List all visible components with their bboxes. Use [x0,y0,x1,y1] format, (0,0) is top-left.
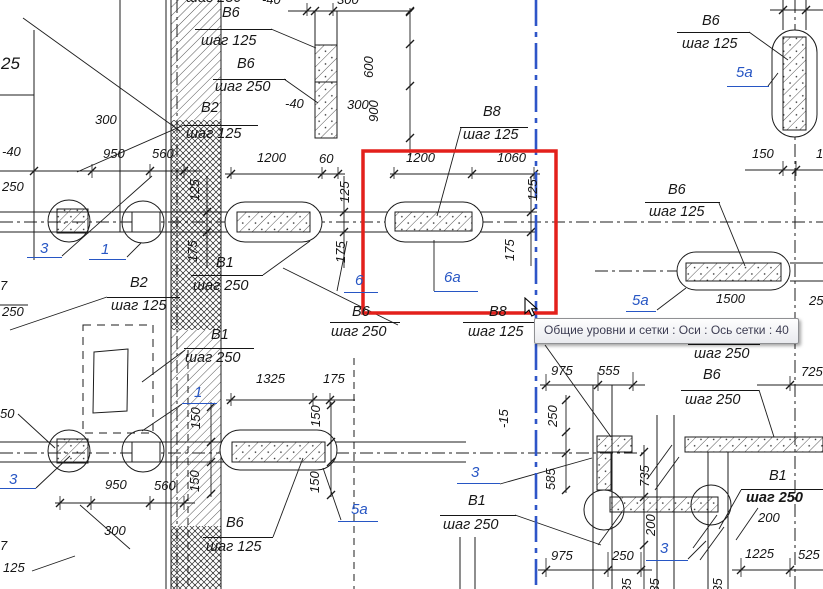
dimension-label: 7 [0,539,7,552]
grid-ref-underline [646,560,688,561]
cursor-arrow [524,297,540,319]
dimension-label: 560 [154,479,176,492]
label-underline [681,390,759,391]
dimension-label: 200 [758,511,780,524]
dimension-label: 1060 [497,151,526,164]
rebar-spacing-label: В6 [668,183,686,198]
rebar-zones [48,30,823,530]
rebar-spacing-label: шаг 250 [185,351,240,366]
grid-ref-label: 3 [40,241,48,256]
rebar-spacing-label: шаг 250 [193,279,248,294]
dimension-label: 150 [752,147,774,160]
dimension-label: 1225 [745,547,774,560]
dimension-label: 735 [638,465,651,487]
dimension-label: 300 [337,0,359,6]
dimension-label: 900 [367,100,380,122]
rebar-spacing-label: шаг 125 [649,205,704,220]
label-underline [741,489,823,490]
grid-ref-label: 1 [101,242,109,257]
cad-viewport[interactable]: шаг 250В6шаг 125В6шаг 250В2шаг 125-40300… [0,0,823,589]
rebar-spacing-label: В6 [702,14,720,29]
dimension-label: 200 [644,514,657,536]
grid-ref-underline [0,488,36,489]
grid-ref-underline [727,86,769,87]
rebar-spacing-label: В8 [483,105,501,120]
label-underline [463,322,545,323]
dimension-label: 125 [188,179,201,201]
dimension-label: 555 [598,364,620,377]
dimension-label: 600 [362,56,375,78]
dimension-label: 585 [544,468,557,490]
grid-ref-underline [626,311,656,312]
tooltip: Общие уровни и сетки : Оси : Ось сетки :… [534,318,799,344]
dimension-label: 250 [2,305,24,318]
rebar-spacing-label: В1 [468,494,486,509]
dimension-label: 250 [612,549,634,562]
rebar-spacing-label: В1 [216,256,234,271]
grid-ref-label: 3 [471,465,479,480]
grid-ref-label: 5а [632,293,649,308]
dimension-label: 175 [323,372,345,385]
dimension-label: 25 [1,55,20,72]
dimension-label: 175 [334,241,347,263]
dimension-label: 975 [551,549,573,562]
dimension-label: 1325 [256,372,285,385]
label-underline [195,29,272,30]
dimension-label: 235 [711,578,724,589]
rebar-spacing-label: В6 [226,516,244,531]
grid-ref-label: 6 [355,273,363,288]
rebar-spacing-label: шаг 250 [443,518,498,533]
grid-ref-label: 3 [660,541,668,556]
rebar-spacing-label: В6 [237,57,255,72]
label-underline [184,125,258,126]
rebar-spacing-label: шаг 250 [215,80,270,95]
dimension-label: 235 [648,578,661,589]
dimension-label: 125 [338,181,351,203]
dimension-label: 60 [319,152,333,165]
grid-ref-underline [182,403,217,404]
dimension-label: -40 [2,145,21,158]
dimension-label: 725 [801,365,823,378]
label-underline [330,322,400,323]
dimension-label: 975 [551,364,573,377]
grid-ref-label: 5а [351,502,368,517]
dimension-label: 250 [809,294,823,307]
rebar-spacing-label: шаг 125 [468,325,523,340]
dimension-label: 125 [3,561,25,574]
dimension-label: 250 [546,405,559,427]
dimension-label: -15 [497,409,510,428]
dimension-label: -40 [262,0,281,6]
grid-ref-underline [344,292,378,293]
dimension-label: -40 [285,97,304,110]
rebar-spacing-label: шаг 250 [694,347,749,362]
cad-drawing-canvas[interactable] [0,0,823,589]
dimension-label: 950 [105,478,127,491]
dimension-label: 150 [189,407,202,429]
dimension-label: 525 [798,548,820,561]
rebar-spacing-label: шаг 125 [206,540,261,555]
label-underline [688,344,760,345]
grid-ref-underline [434,291,478,292]
rebar-spacing-label: шаг 125 [201,34,256,49]
rebar-spacing-label: шаг 125 [111,299,166,314]
label-underline [440,515,516,516]
label-underline [645,202,720,203]
dimension-label: 7 [0,279,7,292]
dimension-label: 150 [308,471,321,493]
dimension-label: 250 [2,180,24,193]
dimension-label: 150 [816,147,823,160]
rebar-spacing-label: В8 [489,305,507,320]
dimension-label: 175 [503,239,516,261]
dimension-label: 950 [103,147,125,160]
dimension-label: 1500 [716,292,745,305]
dimension-label: 300 [95,113,117,126]
dimension-label: 235 [620,578,633,589]
dimension-label: 50 [0,407,14,420]
grid-ref-underline [338,521,378,522]
rebar-spacing-label: шаг 125 [463,128,518,143]
grid-ref-label: 3 [9,472,17,487]
rebar-spacing-label: В1 [211,328,229,343]
rebar-spacing-label: В6 [222,6,240,21]
rebar-spacing-label: В6 [352,305,370,320]
grid-ref-label: 1 [194,385,202,400]
dimension-label: 300 [104,524,126,537]
dimension-label: 1200 [406,151,435,164]
dimension-label: 125 [526,179,539,201]
label-underline [213,79,286,80]
grid-ref-underline [457,483,500,484]
rebar-spacing-label: В2 [201,101,219,116]
rebar-spacing-label: В2 [130,276,148,291]
dimension-label: 175 [186,240,199,262]
grid-ref-underline [27,257,62,258]
rebar-spacing-label: шаг 250 [746,491,803,506]
label-underline [107,297,180,298]
rebar-spacing-label: шаг 250 [685,393,740,408]
rebar-spacing-label: шаг 125 [682,37,737,52]
label-underline [203,537,273,538]
grid-ref-label: 5а [736,65,753,80]
rebar-spacing-label: В1 [769,469,787,484]
label-underline [191,275,263,276]
dimension-label: 560 [152,147,174,160]
label-underline [184,348,254,349]
grid-ref-label: 6а [444,270,461,285]
label-underline [460,127,528,128]
wall-hatching [171,0,221,589]
dimension-label: 1200 [257,151,286,164]
rebar-spacing-label: В6 [703,368,721,383]
grid-ref-underline [89,259,126,260]
dimension-label: 150 [188,470,201,492]
dimension-label: 150 [309,405,322,427]
rebar-spacing-label: шаг 125 [186,127,241,142]
label-underline [677,32,750,33]
rebar-spacing-label: шаг 250 [331,325,386,340]
